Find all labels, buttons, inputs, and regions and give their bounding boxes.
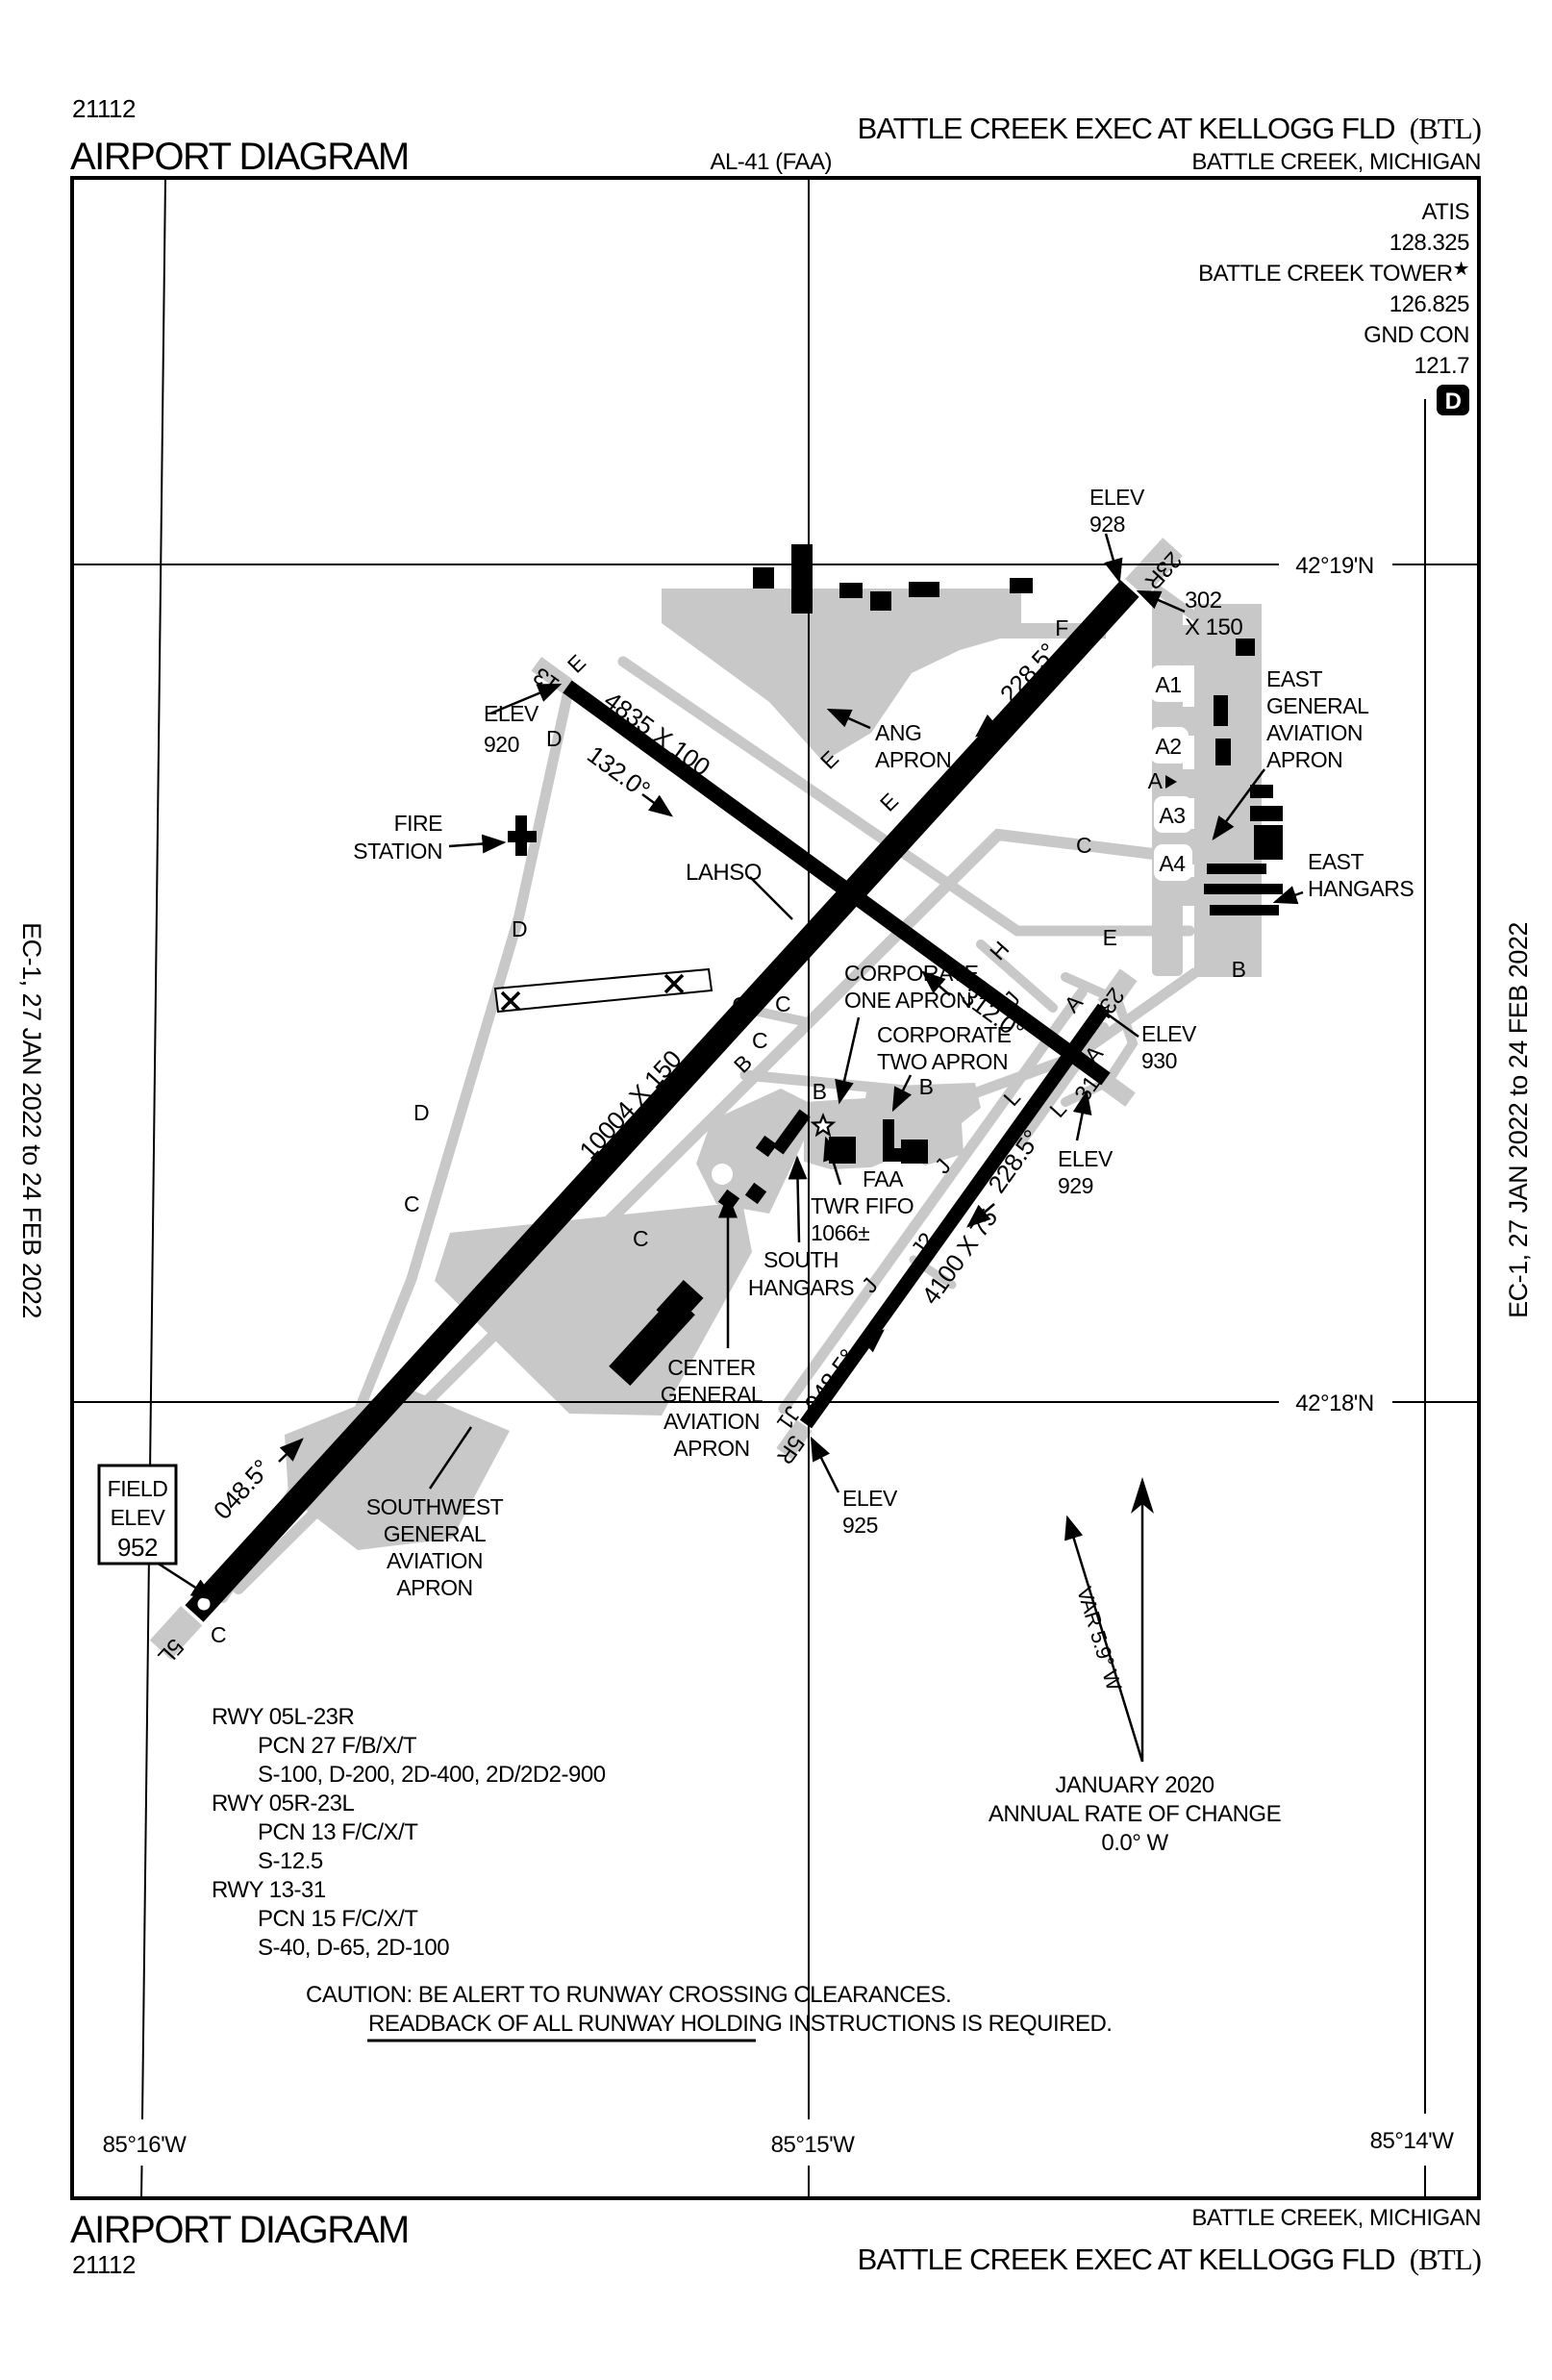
r5l-threshold-dot	[198, 1598, 211, 1611]
rwy2-pcn: PCN 13 F/C/X/T	[258, 1819, 418, 1845]
leader-south-hangars	[797, 1158, 799, 1242]
runway-data-block: RWY 05L-23R PCN 27 F/B/X/T S-100, D-200,…	[212, 1704, 606, 1961]
arrow-hdg-132	[642, 794, 671, 815]
east-building	[1215, 739, 1231, 765]
lon-label-3: 85°14'W	[1370, 2128, 1455, 2154]
rwy2-strength: S-12.5	[258, 1848, 323, 1874]
twy-b: B	[919, 1074, 934, 1099]
var-label: VAR 5.9° W	[1072, 1584, 1127, 1693]
twy-d: D	[512, 916, 527, 941]
var-date: JANUARY 2020	[1055, 1772, 1214, 1798]
centerga-l3: AVIATION	[663, 1409, 760, 1434]
ang-building	[909, 582, 939, 597]
east-building	[1254, 825, 1283, 860]
footer-airport: BATTLE CREEK EXEC AT KELLOGG FLD (BTL)	[858, 2242, 1481, 2276]
twy-c: C	[633, 1226, 648, 1251]
fire-l1: FIRE	[394, 811, 443, 836]
ang-building-tall	[791, 544, 813, 614]
leader-field-elev	[157, 1563, 213, 1599]
field-elev-value: 952	[117, 1533, 158, 1562]
chart-code: AL-41 (FAA)	[710, 149, 832, 175]
tower-freq: 126.825	[1389, 291, 1469, 317]
twy-a3: A3	[1159, 803, 1185, 828]
centerga-l4: APRON	[673, 1436, 749, 1461]
caution-line2: READBACK OF ALL RUNWAY HOLDING INSTRUCTI…	[368, 2011, 1112, 2037]
disp-302: 302	[1185, 588, 1222, 614]
twy-c: C	[775, 991, 790, 1016]
twy-a1: A1	[1155, 672, 1181, 697]
lahso-label: LAHSO	[686, 860, 762, 886]
ang-building	[839, 583, 863, 598]
corporate-building	[901, 1140, 928, 1164]
east-building	[1214, 695, 1228, 726]
rwy2-title: RWY 05R-23L	[212, 1791, 355, 1816]
twy-a2: A2	[1155, 734, 1181, 759]
chart-id: 21112	[72, 94, 136, 123]
fire-l2: STATION	[353, 839, 442, 864]
ang-l2: APRON	[875, 747, 951, 772]
compass-group: VAR 5.9° W JANUARY 2020 ANNUAL RATE OF C…	[989, 1477, 1281, 1856]
eastga-l4: APRON	[1266, 747, 1342, 772]
twy-f: F	[1055, 615, 1068, 640]
ang-building	[1010, 578, 1033, 593]
easthang-l1: EAST	[1308, 849, 1364, 874]
edition-left: EC-1, 27 JAN 2022 to 24 FEB 2022	[17, 922, 46, 1318]
leader-fire-station	[449, 842, 504, 846]
eastga-l3: AVIATION	[1266, 720, 1363, 745]
corp2-l2: TWO APRON	[877, 1049, 1008, 1074]
elev930-l2: 930	[1141, 1048, 1177, 1073]
elev920-l1: ELEV	[484, 701, 539, 726]
header: 21112 AIRPORT DIAGRAM AL-41 (FAA) BATTLE…	[70, 94, 1481, 178]
elev928-l1: ELEV	[1089, 485, 1145, 510]
faa-l1: FAA	[863, 1166, 904, 1191]
segmented-circle	[712, 1164, 733, 1185]
doc-title: AIRPORT DIAGRAM	[70, 136, 409, 178]
elev930-l1: ELEV	[1141, 1021, 1197, 1046]
easthang-l2: HANGARS	[1308, 876, 1414, 901]
twy-a4: A4	[1159, 851, 1186, 876]
diagram-canvas: 21112 AIRPORT DIAGRAM AL-41 (FAA) BATTLE…	[0, 0, 1552, 2380]
atis-label: ATIS	[1421, 199, 1469, 225]
rwy3-title: RWY 13-31	[212, 1877, 326, 1903]
swga-l4: APRON	[396, 1575, 472, 1600]
faa-l3: 1066±	[811, 1220, 869, 1245]
corp1-l1: CORPORATE	[844, 961, 979, 986]
elev929-l1: ELEV	[1058, 1146, 1114, 1171]
caution-line1: CAUTION: BE ALERT TO RUNWAY CROSSING CLE…	[306, 1982, 951, 2008]
centerga-l1: CENTER	[667, 1355, 756, 1380]
east-hangar-bar	[1207, 864, 1266, 874]
ang-l1: ANG	[875, 720, 921, 745]
twy-g: G	[732, 992, 748, 1017]
corp1-l2: ONE APRON	[844, 988, 971, 1013]
longitude-lines	[141, 178, 1425, 2198]
eastga-l2: GENERAL	[1266, 693, 1369, 718]
elev920-l2: 920	[484, 732, 519, 757]
a-connector-5	[1181, 877, 1196, 906]
lon-label-2: 85°15'W	[771, 2132, 856, 2158]
gnd-label: GND CON	[1364, 322, 1469, 348]
lon-label-1: 85°16'W	[103, 2132, 188, 2158]
footer: AIRPORT DIAGRAM 21112 BATTLE CREEK, MICH…	[70, 2205, 1481, 2279]
twy-c: C	[211, 1622, 226, 1647]
swga-l1: SOUTHWEST	[366, 1494, 504, 1519]
field-elev-line1: FIELD	[108, 1476, 168, 1501]
twy-b: B	[813, 1079, 827, 1104]
elev925-l2: 925	[842, 1513, 878, 1538]
twy-h: H	[985, 937, 1014, 965]
field-elev-line2: ELEV	[111, 1505, 166, 1530]
caution-block: CAUTION: BE ALERT TO RUNWAY CROSSING CLE…	[306, 1982, 1112, 2041]
east-building	[1250, 806, 1283, 821]
faa-l2: TWR FIFO	[811, 1193, 914, 1218]
airport-title: BATTLE CREEK EXEC AT KELLOGG FLD (BTL)	[858, 112, 1481, 145]
ang-building	[870, 591, 891, 611]
twy-a: A	[1148, 768, 1164, 793]
east-building	[1236, 639, 1255, 656]
airport-diagram-page: 21112 AIRPORT DIAGRAM AL-41 (FAA) BATTLE…	[0, 0, 1552, 2380]
rwy3-strength: S-40, D-65, 2D-100	[258, 1935, 449, 1961]
eastga-l1: EAST	[1266, 666, 1323, 691]
twy-c: C	[1076, 833, 1091, 858]
twy-e: E	[875, 789, 903, 816]
lat-label-1: 42°19'N	[1295, 553, 1373, 579]
elev928-l2: 928	[1089, 512, 1125, 537]
twy-d: D	[546, 726, 562, 751]
east-building	[1250, 785, 1273, 798]
atis-freq: 128.325	[1389, 230, 1469, 256]
southhang-l1: SOUTH	[763, 1247, 839, 1272]
city-title: BATTLE CREEK, MICHIGAN	[1191, 149, 1481, 175]
corp2-l1: CORPORATE	[877, 1022, 1012, 1047]
twy-c: C	[752, 1028, 767, 1053]
disp-x150: X 150	[1185, 614, 1242, 640]
twy-e: E	[1103, 925, 1117, 950]
rwy3-pcn: PCN 15 F/C/X/T	[258, 1906, 418, 1932]
comms-block: ATIS 128.325 BATTLE CREEK TOWER★ 126.825…	[1198, 199, 1469, 415]
footer-doc-title: AIRPORT DIAGRAM	[70, 2209, 409, 2251]
gnd-freq: 121.7	[1414, 353, 1469, 379]
southhang-l2: HANGARS	[748, 1275, 854, 1300]
swga-l3: AVIATION	[387, 1548, 483, 1573]
east-hangar-bar	[1210, 905, 1279, 915]
twy-c: C	[404, 1191, 419, 1216]
twy-b: B	[1232, 957, 1246, 982]
ang-building	[753, 567, 774, 589]
closed-taxiway	[495, 969, 712, 1012]
centerga-l2: GENERAL	[661, 1382, 763, 1407]
twy-d: D	[413, 1100, 429, 1125]
swga-l2: GENERAL	[384, 1521, 487, 1546]
edition-right: EC-1, 27 JAN 2022 to 24 FEB 2022	[1504, 922, 1533, 1318]
footer-city: BATTLE CREEK, MICHIGAN	[1191, 2205, 1481, 2231]
a-connector-3	[1181, 769, 1196, 798]
east-hangar-bar	[1204, 884, 1283, 894]
leader-elev928	[1106, 534, 1119, 581]
hdg-048b: 048.5°	[208, 1454, 276, 1525]
elev929-l2: 929	[1058, 1173, 1093, 1198]
lat-label-2: 42°18'N	[1295, 1390, 1373, 1416]
var-rate: ANNUAL RATE OF CHANGE	[989, 1801, 1281, 1827]
rwy1-pcn: PCN 27 F/B/X/T	[258, 1733, 417, 1759]
field-elev-box: FIELD ELEV 952	[99, 1466, 176, 1564]
leader-elev925	[812, 1439, 839, 1492]
rwy1-title: RWY 05L-23R	[212, 1704, 355, 1730]
elev925-l1: ELEV	[842, 1486, 898, 1511]
d-icon-letter: D	[1445, 388, 1462, 414]
rwy1-strength: S-100, D-200, 2D-400, 2D/2D2-900	[258, 1762, 606, 1788]
tower-label: BATTLE CREEK TOWER★	[1198, 259, 1469, 287]
var-value: 0.0° W	[1101, 1830, 1168, 1856]
footer-chart-id: 21112	[72, 2250, 136, 2279]
twy-e: E	[563, 650, 590, 678]
